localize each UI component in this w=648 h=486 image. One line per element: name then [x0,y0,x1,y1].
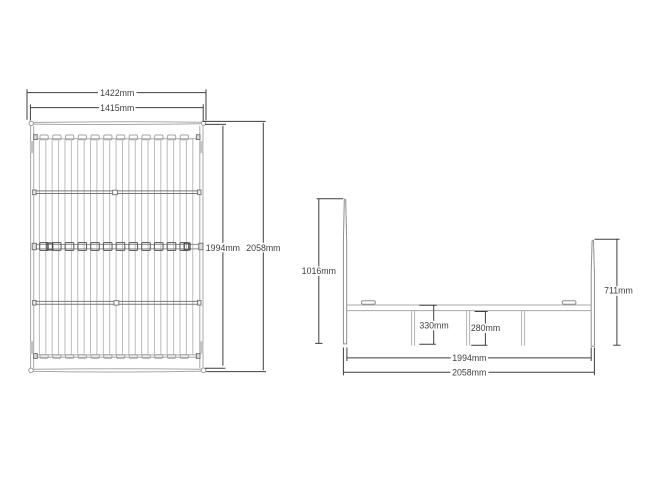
svg-text:280mm: 280mm [471,323,500,333]
svg-text:1994mm: 1994mm [452,353,486,363]
svg-text:1415mm: 1415mm [100,103,134,113]
svg-text:2058mm: 2058mm [246,243,280,253]
svg-text:1994mm: 1994mm [206,243,240,253]
svg-text:330mm: 330mm [419,320,448,330]
svg-text:1422mm: 1422mm [100,88,134,98]
svg-text:711mm: 711mm [604,285,633,295]
svg-text:1016mm: 1016mm [302,266,336,276]
svg-text:2058mm: 2058mm [452,367,486,377]
